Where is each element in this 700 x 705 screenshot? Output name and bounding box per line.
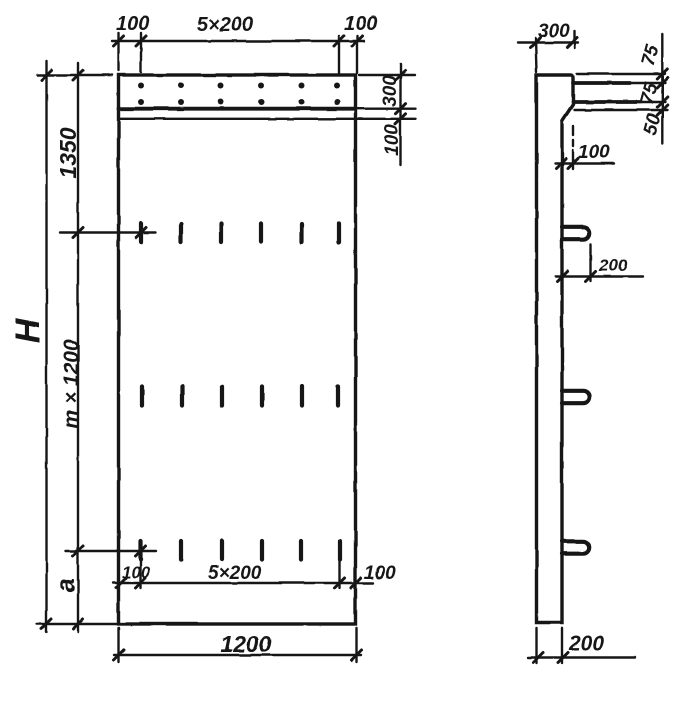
svg-text:200: 200: [568, 632, 604, 655]
svg-text:1350: 1350: [55, 127, 81, 178]
svg-text:5×200: 5×200: [208, 563, 262, 584]
svg-text:100: 100: [364, 563, 396, 584]
svg-text:m × 1200: m × 1200: [60, 339, 83, 429]
svg-text:300: 300: [380, 75, 401, 107]
svg-text:H: H: [9, 317, 47, 343]
svg-text:a: a: [50, 578, 80, 592]
svg-text:100: 100: [382, 124, 403, 156]
svg-text:100: 100: [116, 13, 149, 35]
svg-text:1200: 1200: [220, 631, 271, 657]
svg-text:200: 200: [598, 256, 628, 275]
svg-text:100: 100: [122, 563, 151, 582]
svg-text:300: 300: [538, 21, 570, 42]
svg-text:100: 100: [578, 142, 610, 163]
svg-text:75: 75: [638, 42, 664, 68]
svg-text:5×200: 5×200: [197, 14, 253, 36]
svg-text:100: 100: [344, 13, 377, 35]
